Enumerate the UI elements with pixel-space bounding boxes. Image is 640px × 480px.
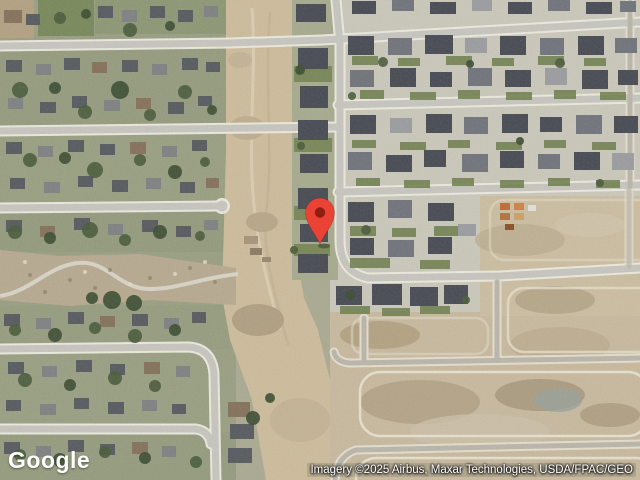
- map-attribution: Imagery ©2025 Airbus, Maxar Technologies…: [307, 463, 636, 477]
- google-logo[interactable]: Google: [8, 447, 90, 474]
- satellite-imagery: [0, 0, 640, 480]
- map-canvas[interactable]: Google Imagery ©2025 Airbus, Maxar Techn…: [0, 0, 640, 480]
